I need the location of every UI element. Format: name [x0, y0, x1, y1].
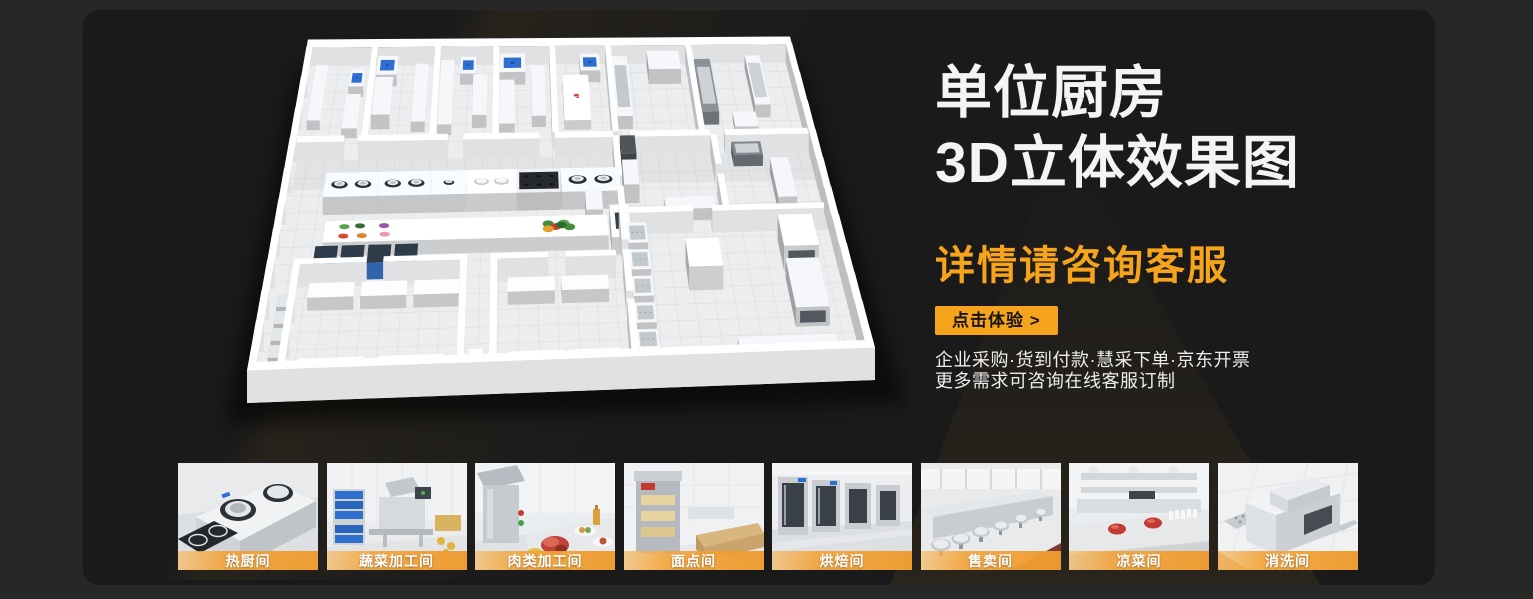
thumbnail-label: 热厨间 [178, 551, 318, 570]
thumbnail-label: 肉类加工间 [475, 551, 615, 570]
room-thumbnails-row: 热厨间 蔬菜加工间 [178, 463, 1358, 570]
thumbnail-meat-processing[interactable]: 肉类加工间 [475, 463, 615, 570]
thumbnail-hot-kitchen[interactable]: 热厨间 [178, 463, 318, 570]
thumbnail-pastry-room[interactable]: 面点间 [624, 463, 764, 570]
kitchen-floorplan-3d-image [150, 10, 910, 455]
hero-notes: 企业采购·货到付款·慧采下单·京东开票 更多需求可咨询在线客服订制 [935, 350, 1415, 392]
thumbnail-label: 烘焙间 [772, 551, 912, 570]
hero-note-line2: 更多需求可咨询在线客服订制 [935, 371, 1415, 392]
promo-banner-page: { "hero": { "title_line1": "单位厨房", "titl… [0, 0, 1533, 599]
thumbnail-cold-dish-room[interactable]: 凉菜间 [1069, 463, 1209, 570]
hero-subtitle: 详情请咨询客服 [935, 244, 1415, 288]
thumbnail-washing-room[interactable]: 消洗间 [1218, 463, 1358, 570]
thumbnail-label: 消洗间 [1218, 551, 1358, 570]
hero-title-line2: 3D立体效果图 [935, 128, 1415, 198]
cta-button[interactable]: 点击体验 > [935, 306, 1058, 335]
thumbnail-label: 凉菜间 [1069, 551, 1209, 570]
thumbnail-label: 蔬菜加工间 [327, 551, 467, 570]
thumbnail-label: 面点间 [624, 551, 764, 570]
hero-title-line1: 单位厨房 [935, 58, 1415, 128]
hero-note-line1: 企业采购·货到付款·慧采下单·京东开票 [935, 350, 1415, 371]
hero-text-block: 单位厨房 3D立体效果图 详情请咨询客服 点击体验 > 企业采购·货到付款·慧采… [935, 58, 1415, 392]
thumbnail-label: 售卖间 [921, 551, 1061, 570]
thumbnail-vegetable-processing[interactable]: 蔬菜加工间 [327, 463, 467, 570]
thumbnail-serving-room[interactable]: 售卖间 [921, 463, 1061, 570]
thumbnail-baking-room[interactable]: 烘焙间 [772, 463, 912, 570]
kitchen-floorplan-3d-svg [150, 10, 910, 455]
